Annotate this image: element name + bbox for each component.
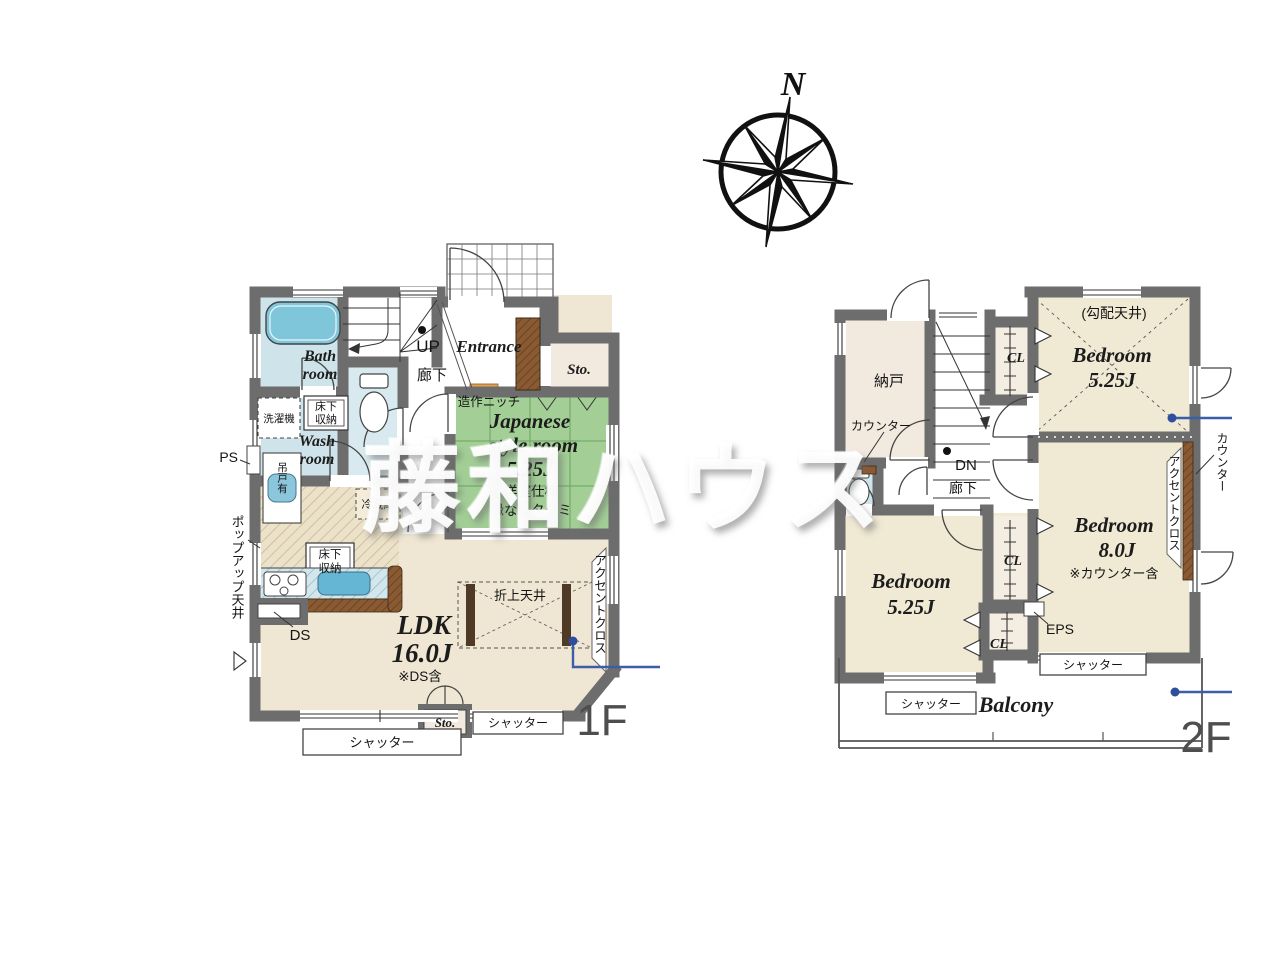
- bathtub: [266, 302, 340, 344]
- stove: [264, 572, 306, 596]
- sloped-ceiling-label: (勾配天井): [1081, 305, 1146, 321]
- pipe-space: [247, 446, 260, 474]
- storeroom-label: 納戸: [874, 373, 904, 390]
- bedroom2-size: 8.0J: [1099, 538, 1137, 562]
- floor-label-1f: 1F: [576, 696, 627, 745]
- wash-underfloor-line1: 床下: [315, 399, 337, 413]
- shutter-label-2f-left: シャッター: [901, 697, 961, 711]
- ps-label: PS: [219, 449, 238, 465]
- bedroom2-counter: [1183, 442, 1193, 580]
- shutter-label-1f-right: シャッター: [488, 716, 548, 730]
- ds-label: DS: [290, 627, 311, 644]
- compass-north-label: N: [780, 66, 807, 103]
- bathroom-label-line2: room: [303, 366, 338, 383]
- storage-upper-label: Sto.: [567, 362, 591, 378]
- counter-wood-front: [303, 599, 398, 612]
- ldk-label: LDK: [396, 610, 453, 640]
- bedroom2-note: ※カウンター含: [1070, 566, 1159, 581]
- balcony-label: Balcony: [978, 692, 1054, 717]
- cl-top-label: CL: [1007, 351, 1025, 366]
- washing-machine-label: 洗濯機: [263, 412, 295, 425]
- bedroom3-label: Bedroom: [870, 569, 950, 593]
- popup-ceiling-label: ポップアップ天井: [230, 515, 245, 620]
- accent-cloth-label-2f: アクセントクロス: [1167, 455, 1181, 551]
- bedroom3-size: 5.25J: [887, 595, 936, 619]
- dn-label: DN: [955, 457, 977, 474]
- compass-icon: N: [703, 66, 853, 247]
- corridor-2f-floor2: [990, 400, 1033, 513]
- floor-label-2f: 2F: [1180, 713, 1231, 762]
- kitchen-underfloor-line1: 床下: [319, 547, 342, 561]
- washroom-label-line2: room: [300, 451, 335, 468]
- entrance-label: Entrance: [455, 337, 522, 356]
- entrance-porch: [447, 244, 553, 302]
- counter-wood-end: [388, 566, 402, 612]
- cl-mid-label: CL: [1004, 554, 1022, 569]
- floorplan-page: UP 廊下 Entrance Sto. 造作ニッチ Japanese -styl…: [0, 0, 1280, 960]
- counter-right-label: カウンター: [1215, 432, 1229, 492]
- wash-underfloor-line2: 収納: [315, 413, 337, 426]
- floorplan-2f: 納戸 カウンター CL DN 廊下 (勾配天井) Bedroom 5.25J カ…: [834, 280, 1233, 762]
- bathroom-label-line1: Bath: [303, 348, 336, 365]
- ds-duct: [250, 598, 308, 625]
- niche-label: 造作ニッチ: [458, 395, 521, 409]
- hanging-door-label: 吊戸有: [276, 462, 288, 494]
- washroom-label-line1: Wash: [299, 433, 335, 450]
- bedroom2-label: Bedroom: [1073, 513, 1153, 537]
- storage-lower-label: Sto.: [435, 715, 456, 730]
- up-marker-dot: [418, 326, 426, 334]
- vent-triangle-icon: [234, 652, 246, 670]
- sink: [318, 572, 370, 595]
- shutter-label-2f-right: シャッター: [1063, 658, 1123, 672]
- bedroom1-size: 5.25J: [1088, 368, 1137, 392]
- raised-ceiling-label: 折上天井: [494, 588, 546, 603]
- cl-low-label: CL: [990, 637, 1008, 652]
- up-label: UP: [416, 337, 440, 356]
- ldk-size: 16.0J: [392, 638, 454, 668]
- shutter-label-1f-left: シャッター: [349, 735, 414, 750]
- watermark-text: 藤和ハウス: [362, 408, 887, 552]
- hallway-2f-label: 廊下: [949, 480, 977, 496]
- ldk-note: ※DS含: [398, 669, 442, 684]
- accent-cloth-label-1f: アクセントクロス: [592, 554, 606, 654]
- hallway-1f-label: 廊下: [417, 367, 447, 384]
- dn-marker-dot: [943, 447, 951, 455]
- eps-box: [1024, 602, 1044, 616]
- kitchen-underfloor-line2: 収納: [319, 562, 342, 575]
- eps-label: EPS: [1046, 621, 1074, 637]
- bedroom1-label: Bedroom: [1071, 343, 1151, 367]
